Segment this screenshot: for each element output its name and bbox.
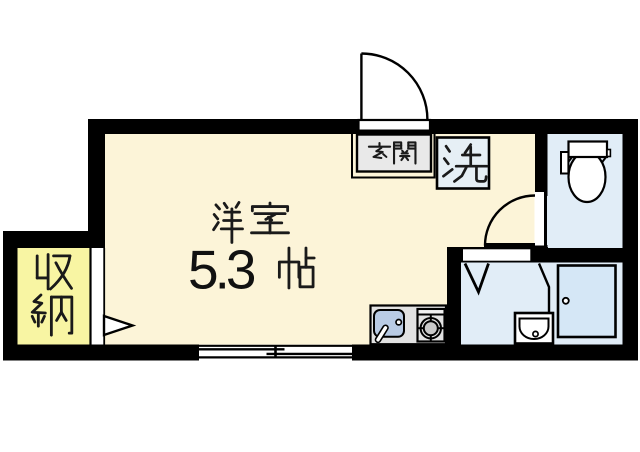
svg-text:5.3: 5.3 xyxy=(188,239,255,301)
